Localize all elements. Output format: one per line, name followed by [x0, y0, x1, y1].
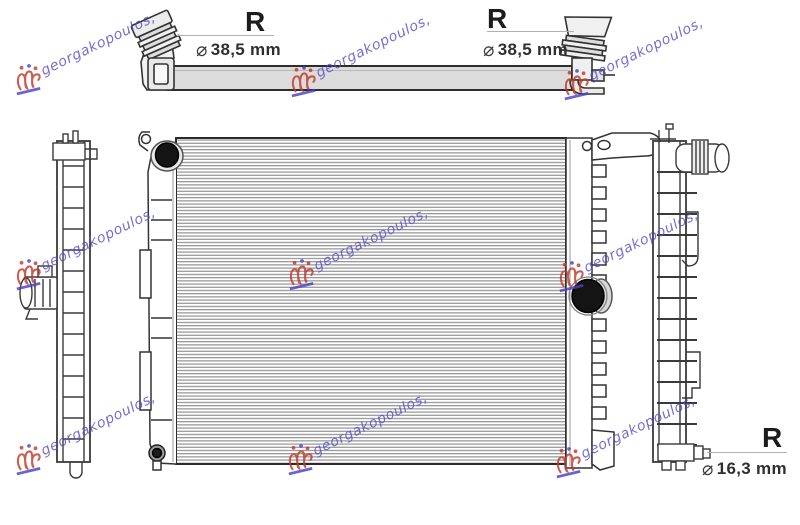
dimension-top-right: ⌀38,5 mm: [483, 40, 568, 59]
connector-label-top-right: R: [487, 5, 507, 33]
radiator-line-art: [0, 0, 800, 525]
dimension-bottom-right: ⌀16,3 mm: [702, 459, 787, 478]
radiator-right-side-view: [650, 124, 729, 470]
radiator-front-view: [139, 132, 660, 470]
dimension-value: 38,5 mm: [498, 40, 568, 59]
leader-line-top-right: [487, 31, 574, 32]
mounting-hole: [142, 135, 151, 144]
drain-plug: [149, 445, 165, 470]
left-view-hose-port: [20, 266, 57, 319]
front-right-tank: [566, 133, 660, 470]
right-view-hose-connector: [676, 140, 729, 174]
radiator-left-side-view: [20, 131, 97, 478]
connector-label-top-left: R: [245, 8, 265, 36]
filler-cap: [156, 143, 179, 167]
diameter-symbol: ⌀: [702, 459, 714, 480]
connector-label-bottom-right: R: [762, 424, 782, 452]
diameter-symbol: ⌀: [196, 40, 208, 61]
front-bottom-right-foot: [592, 430, 614, 470]
leader-line-bottom-right: [707, 452, 787, 453]
radiator-catalog-drawing: R ⌀38,5 mm R ⌀38,5 mm R ⌀16,3 mm georgak…: [0, 0, 800, 525]
leader-line-top-left: [177, 35, 274, 36]
dimension-value: 38,5 mm: [211, 40, 281, 59]
diameter-symbol: ⌀: [483, 40, 495, 61]
left-view-drain: [70, 462, 82, 478]
front-top-right-bracket: [583, 133, 661, 160]
radiator-core: [176, 138, 566, 464]
top-bar: [168, 66, 572, 90]
dimension-value: 16,3 mm: [717, 459, 787, 478]
dimension-top-left: ⌀38,5 mm: [196, 40, 281, 59]
